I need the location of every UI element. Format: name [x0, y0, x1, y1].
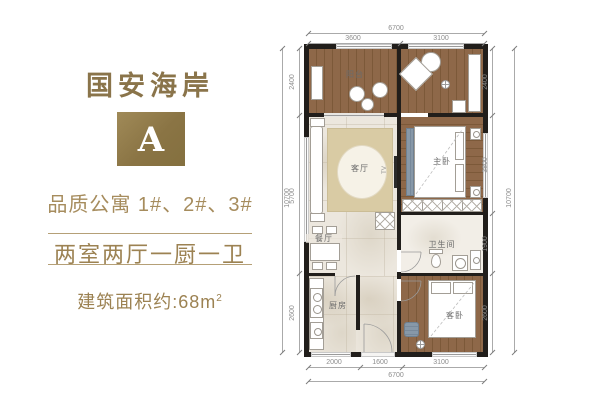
tv-unit [394, 156, 397, 188]
wall-master-bath [401, 212, 483, 215]
guest-stool [404, 322, 419, 337]
dining-chair [326, 226, 337, 234]
subtitle: 品质公寓 1#、2#、3# [30, 188, 270, 217]
master-label: 主卧 [425, 157, 459, 166]
dining-label: 餐厅 [306, 234, 342, 243]
dim-bottom-seg-1: 2000 [314, 359, 354, 367]
guest-door-opening [397, 279, 401, 301]
area-superscript: 2 [216, 293, 223, 304]
dim-right-seg-4: 2600 [482, 293, 490, 333]
dining-chair [312, 226, 323, 234]
dining-chair [312, 262, 323, 270]
sofa [310, 126, 323, 214]
dim-top-seg-1: 3600 [333, 35, 373, 43]
window-kitchen [311, 352, 351, 357]
window-sitting [408, 44, 464, 49]
bathroom-label: 卫生间 [422, 240, 462, 249]
dim-right-seg-3: 1900 [482, 224, 490, 264]
balcony-cabinet [311, 66, 323, 100]
unit-a-badge: A [117, 112, 185, 166]
window-balcony [336, 44, 392, 49]
balcony-table [361, 98, 374, 111]
guest-pillow [453, 282, 473, 294]
sitting-cabinet [468, 54, 481, 112]
wall-tv [397, 113, 401, 215]
dim-line-top-segs [308, 43, 484, 44]
divider-top [48, 233, 252, 234]
area-value: 建筑面积约:68m [77, 292, 216, 312]
dim-bottom-total: 6700 [376, 372, 416, 380]
wall-kitchen-top [309, 273, 335, 276]
wall-sitting-master [428, 113, 483, 117]
unit-letter: A [138, 120, 164, 160]
master-bed-runner [406, 128, 414, 196]
entry-opening [361, 352, 395, 357]
divider-bottom [48, 264, 252, 265]
kitchen-sink [310, 322, 323, 339]
balcony-sliding-door [324, 113, 384, 117]
balcony-chair [372, 82, 388, 98]
dining-chair [326, 262, 337, 270]
master-pillow [455, 132, 464, 160]
dim-top-total: 6700 [376, 25, 416, 33]
guest-label: 客卧 [438, 311, 472, 320]
dim-line-right-segs [492, 48, 493, 353]
sofa-armrest [310, 213, 325, 222]
balcony-label: 阳台 [335, 70, 375, 79]
dim-line-left-total [282, 48, 283, 353]
guest-pillow [431, 282, 451, 294]
dim-line-bottom-total [308, 381, 484, 382]
dim-line-right-total [514, 48, 515, 353]
room-corridor [356, 276, 397, 352]
nightstand [470, 186, 481, 198]
bath-door-opening [397, 250, 401, 272]
wall-kitchen-right [356, 275, 360, 330]
tv-label: TV [382, 160, 390, 180]
living-label: 客厅 [340, 164, 380, 173]
dining-table [310, 243, 340, 261]
sitting-side-table [452, 100, 466, 113]
dim-top-seg-2: 3100 [421, 35, 461, 43]
shaft-hatched [375, 212, 395, 230]
dim-right-seg-1: 2400 [482, 62, 490, 102]
project-title: 国安海岸 [30, 64, 270, 103]
dim-line-bottom-segs [308, 367, 484, 368]
window-living [304, 137, 309, 242]
area-text: 建筑面积约:68m2 [30, 288, 270, 314]
ceiling-light-icon [416, 340, 425, 349]
dim-left-seg-2: 5700 [289, 176, 297, 216]
toilet-icon [431, 254, 441, 268]
dim-bottom-seg-3: 3100 [421, 359, 461, 367]
master-pillow [455, 164, 464, 192]
wardrobe [402, 199, 482, 212]
dim-bottom-seg-2: 1600 [360, 359, 400, 367]
dim-left-seg-3: 2600 [289, 293, 297, 333]
bath-sink [470, 250, 481, 270]
dim-line-left-segs [299, 48, 300, 353]
dim-line-top-total [308, 33, 484, 34]
nightstand [470, 128, 481, 140]
dim-left-seg-1: 2400 [289, 62, 297, 102]
window-guest [432, 352, 477, 357]
dim-right-total: 10700 [506, 178, 514, 218]
kitchen-label: 厨房 [322, 301, 354, 310]
washing-machine [452, 255, 468, 271]
poster: 国安海岸 A 品质公寓 1#、2#、3# 两室两厅一厨一卫 建筑面积约:68m2 [0, 0, 600, 400]
dim-right-seg-2: 3800 [482, 145, 490, 185]
wall-bath-guest [401, 273, 483, 276]
ceiling-light-icon [441, 80, 450, 89]
wall-balcony-sitting [397, 49, 401, 113]
